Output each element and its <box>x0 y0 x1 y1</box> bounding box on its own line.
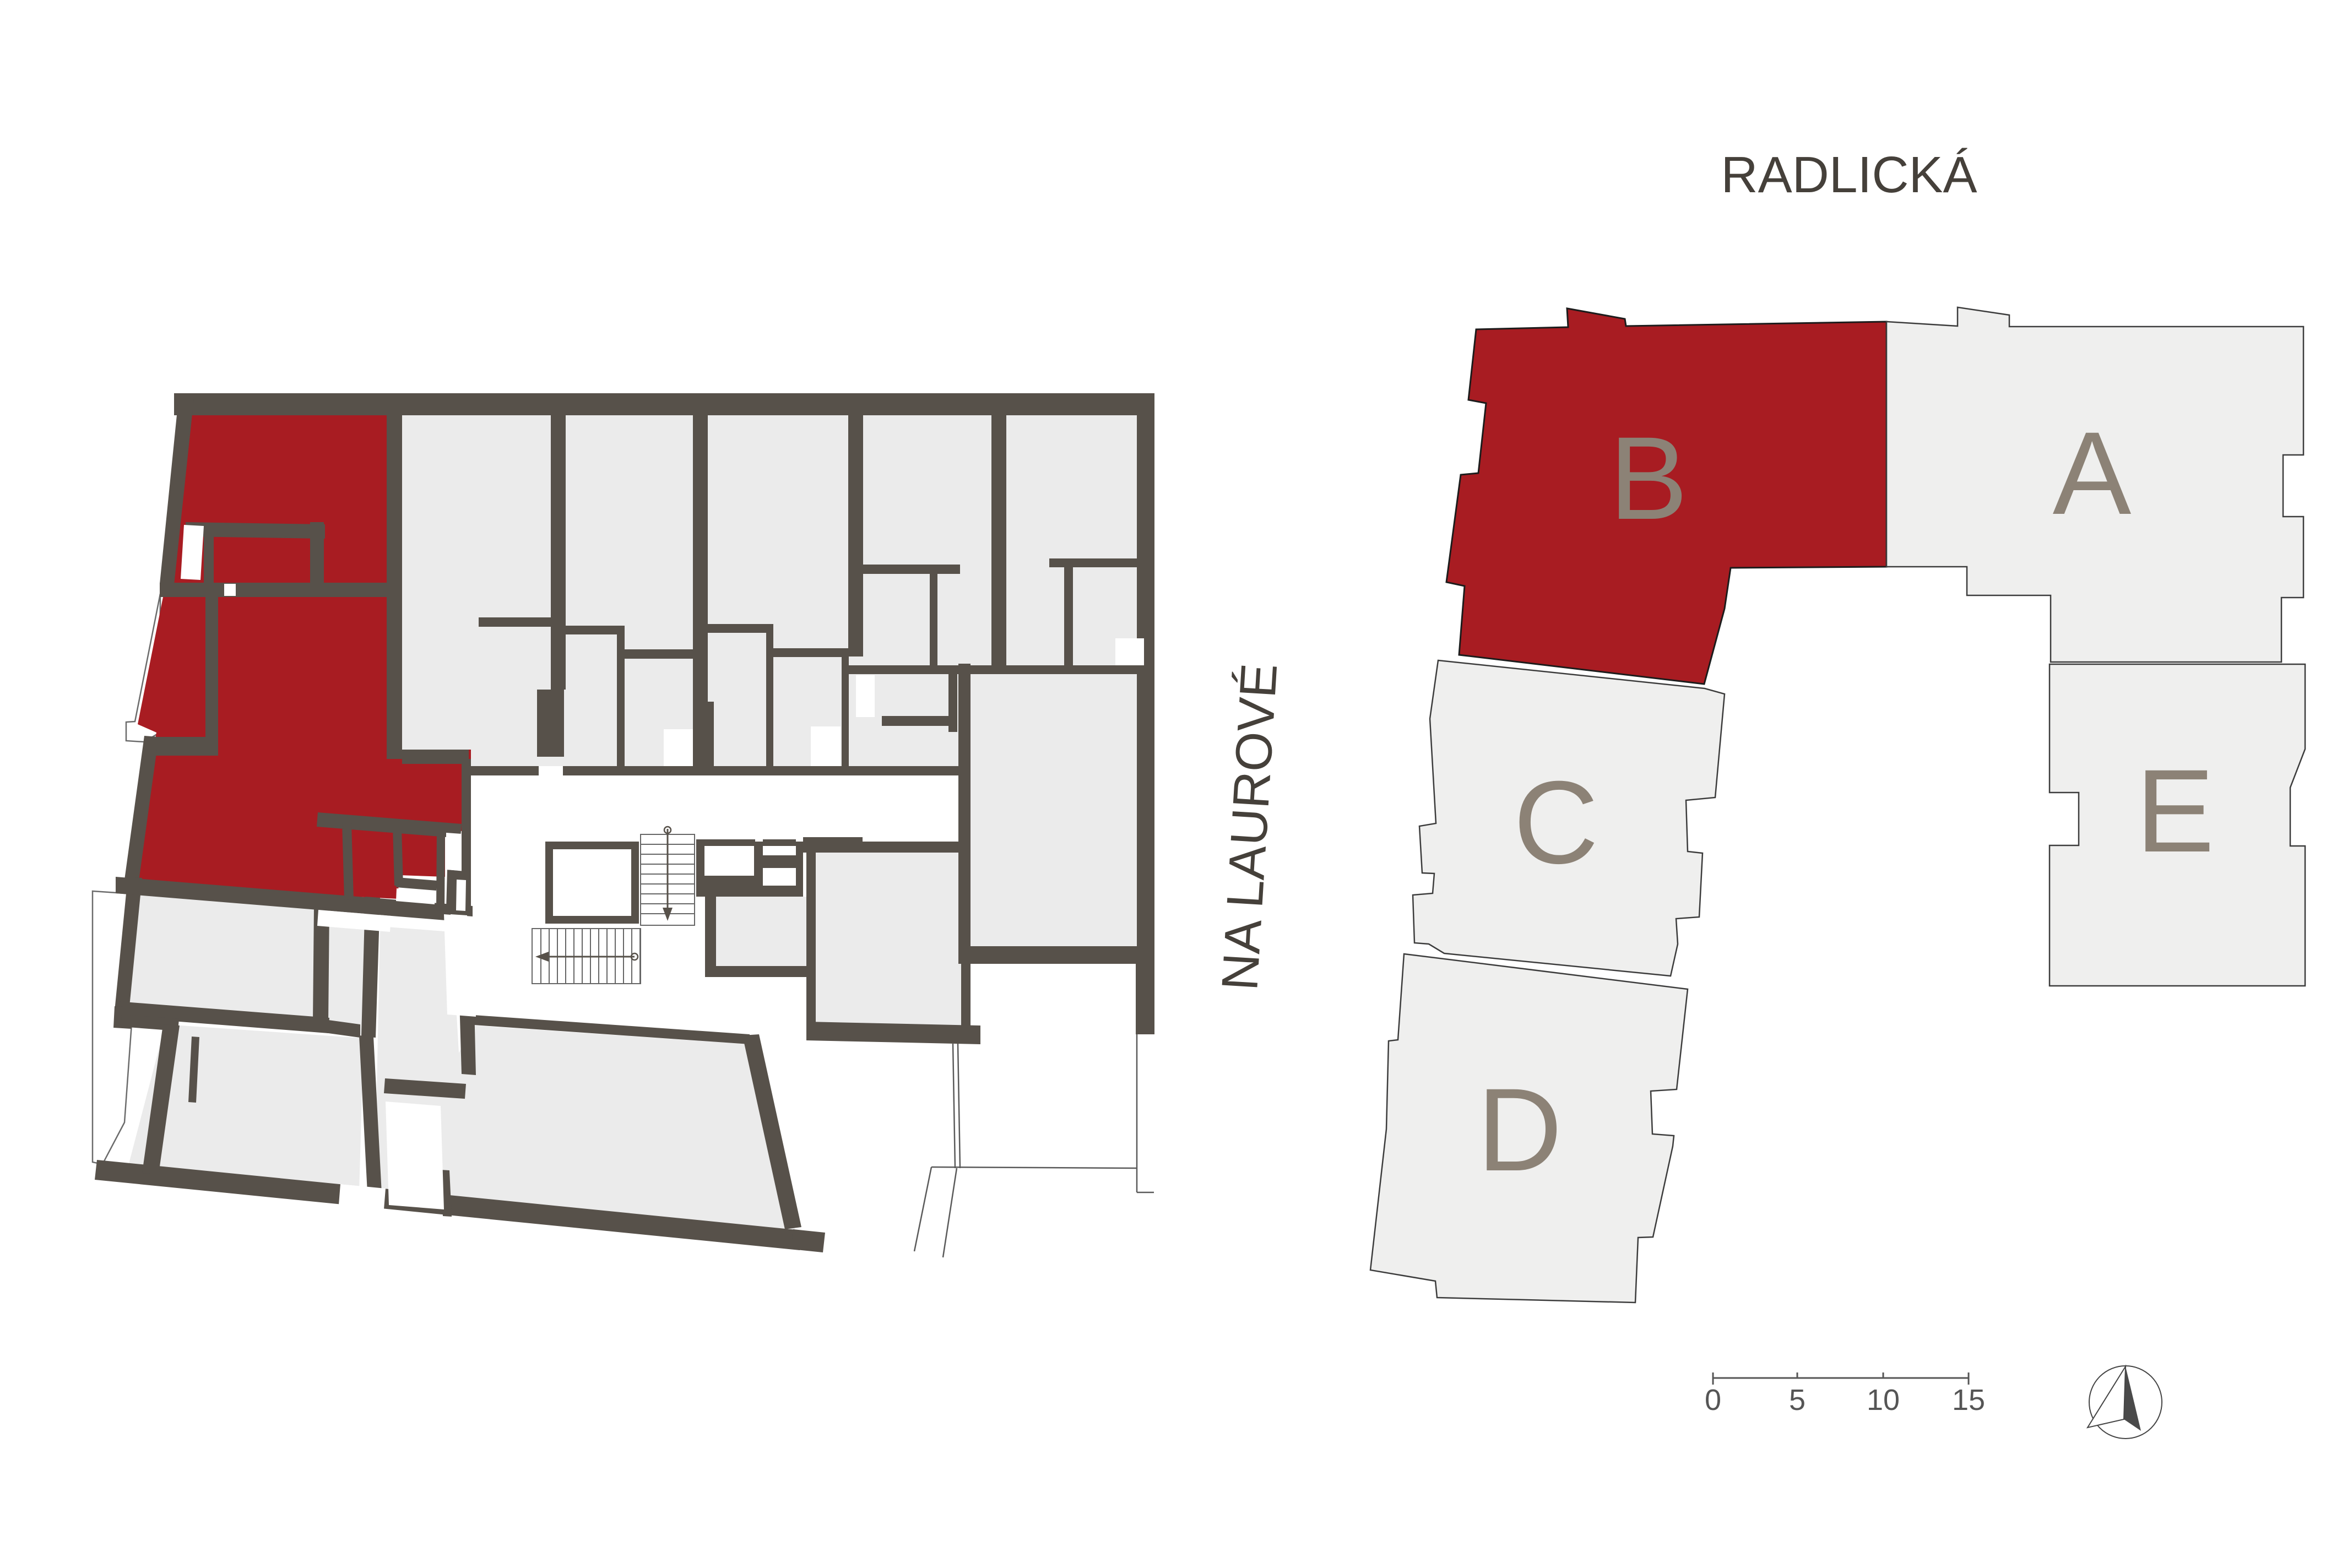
svg-text:10: 10 <box>1867 1383 1900 1417</box>
svg-text:E: E <box>2136 745 2215 877</box>
svg-text:5: 5 <box>1789 1383 1806 1417</box>
svg-text:0: 0 <box>1705 1383 1721 1417</box>
svg-text:D: D <box>1477 1064 1563 1196</box>
svg-text:A: A <box>2053 408 2132 539</box>
svg-text:15: 15 <box>1952 1383 1985 1417</box>
svg-text:RADLICKÁ: RADLICKÁ <box>1721 146 1977 203</box>
svg-text:C: C <box>1514 757 1599 888</box>
svg-text:B: B <box>1609 413 1688 544</box>
